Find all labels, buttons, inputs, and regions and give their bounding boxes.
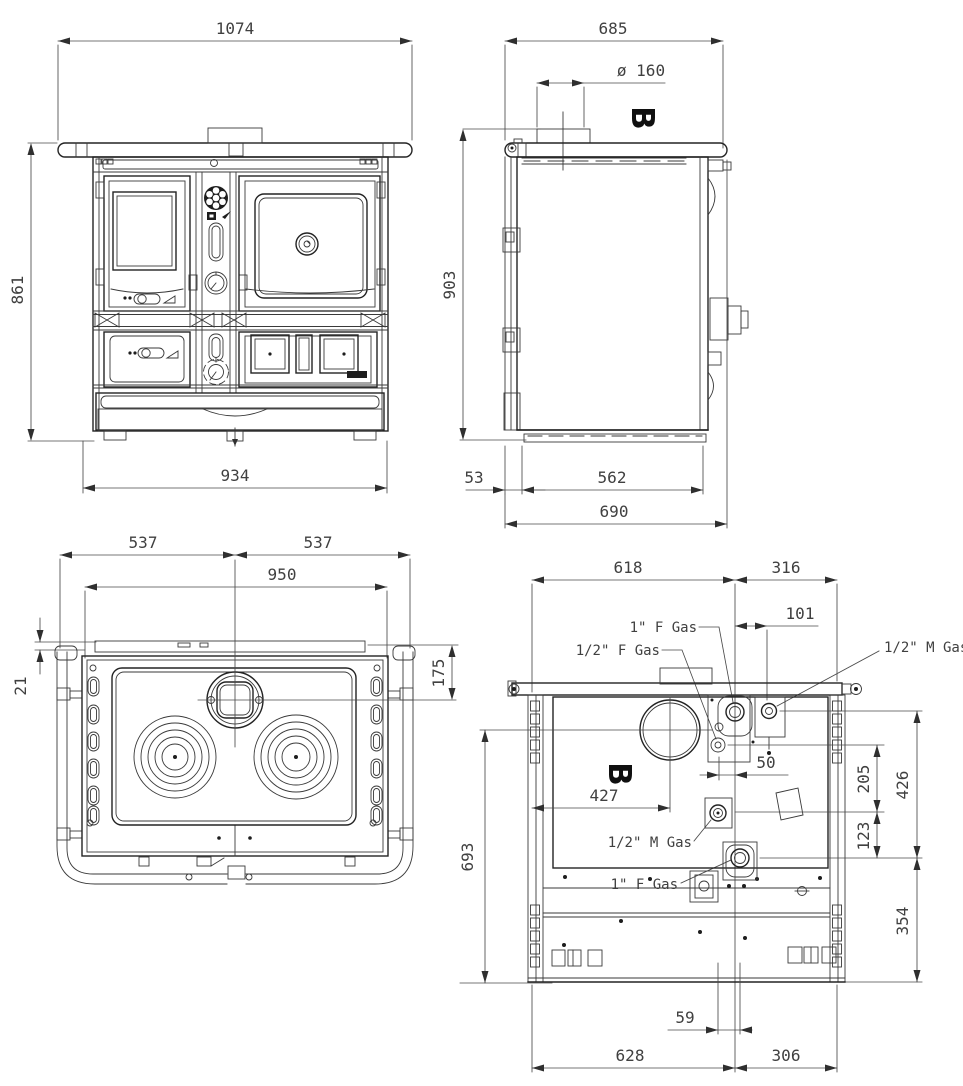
cooktop-plate [112, 668, 356, 825]
dim-text-1074: 1074 [216, 19, 255, 38]
gas-fitting-12f [711, 738, 725, 752]
dim-text-693: 693 [458, 843, 477, 872]
side-dim-overall-height: 903 [440, 129, 541, 440]
dim-text-flue-diameter: ø 160 [617, 61, 665, 80]
dim-text-628: 628 [616, 1046, 645, 1065]
dim-text-316: 316 [772, 558, 801, 577]
oven-knob-icon [296, 233, 318, 255]
dim-text-950: 950 [268, 565, 297, 584]
dim-text-537-left: 537 [129, 533, 158, 552]
dim-text-306: 306 [772, 1046, 801, 1065]
gas-fitting-12m-mid [705, 798, 732, 828]
gas-fitting-1f-bottom [723, 842, 757, 888]
gas-fitting-12m-top [762, 704, 777, 719]
lower-controls [204, 334, 229, 385]
hinge-icon [377, 269, 385, 285]
gas-label-12f-top: 1/2" F Gas [576, 643, 660, 659]
gas-label-1f-bottom: 1" F Gas [611, 877, 678, 893]
hinge-icon [239, 275, 247, 290]
side-worktop-rail [505, 139, 727, 164]
dim-text-59: 59 [675, 1008, 694, 1027]
dim-text-175: 175 [429, 659, 448, 688]
dim-text-562: 562 [598, 468, 627, 487]
rail-end-cap [393, 646, 415, 660]
rear-worktop-rail [508, 668, 862, 696]
dim-text-426: 426 [893, 771, 912, 800]
dim-text-690: 690 [600, 502, 629, 521]
side-rear-fittings [708, 160, 748, 400]
rail-end-cap [55, 646, 77, 660]
rear-dim-59: 59 [668, 963, 752, 1034]
dim-text-21: 21 [11, 676, 30, 695]
rear-dim-354: 354 [846, 858, 922, 982]
dim-text-934: 934 [221, 466, 250, 485]
dim-text-903: 903 [440, 271, 459, 300]
center-bracket [690, 871, 718, 902]
top-dim-worktop-width: 950 [85, 565, 387, 658]
dim-text-861: 861 [8, 276, 27, 305]
top-dim-back-offset: 21 [11, 618, 96, 696]
top-view: 537 537 950 21 [11, 533, 458, 884]
nameplate [347, 371, 367, 378]
gas-label-12m-right: 1/2" M Gas [884, 640, 963, 656]
stove-dimension-drawing: 1074 861 [0, 0, 963, 1086]
dim-text-123: 123 [854, 822, 873, 851]
gas-label-1f-top: 1" F Gas [630, 620, 697, 636]
burner-left [134, 716, 216, 798]
rear-dim-101: 101 [735, 604, 818, 700]
side-base [517, 430, 708, 442]
dim-text-685: 685 [599, 19, 628, 38]
front-dim-overall-height: 861 [8, 143, 94, 441]
gas-label-12m-mid: 1/2" M Gas [608, 835, 692, 851]
rear-flue-stub [660, 668, 712, 684]
front-view: 1074 861 [8, 19, 412, 493]
dim-text-205: 205 [854, 765, 873, 794]
dim-text-354: 354 [893, 907, 912, 936]
chimney-stub [208, 128, 262, 156]
side-body [503, 157, 708, 430]
front-dim-overall-width: 1074 [58, 19, 412, 140]
technical-drawing-sheet: 1074 861 [0, 0, 963, 1086]
grill-knob-icon [204, 358, 229, 385]
worktop [58, 143, 412, 157]
air-vent-wheel-icon [204, 186, 228, 210]
side-dim-base-depth: 562 [534, 446, 703, 494]
oven-door [239, 176, 385, 311]
top-back-rail [95, 641, 365, 652]
ash-door [104, 332, 190, 387]
side-dim-base-offset: 53 [464, 446, 545, 494]
rear-dim-50: 50 [700, 753, 788, 780]
firebox-door [96, 176, 190, 311]
hinge-icon [377, 182, 385, 198]
dim-text-537-right: 537 [304, 533, 333, 552]
hinge-icon [96, 182, 104, 198]
vent-indicator [207, 211, 231, 220]
rear-dim-bottom-widths: 628 306 [532, 985, 837, 1072]
view-label-b-rear: B [601, 762, 637, 786]
dim-text-618: 618 [614, 558, 643, 577]
top-bottom-details [139, 857, 355, 880]
thermometer-gauge [205, 272, 227, 294]
thermometer-slot [209, 223, 223, 261]
middle-band [93, 311, 388, 330]
wood-drawer [93, 385, 388, 430]
gas-fittings-top [708, 695, 785, 762]
dim-text-101: 101 [786, 604, 815, 623]
front-dim-body-width: 934 [83, 441, 387, 493]
burner-right [254, 715, 338, 799]
view-label-b: B [624, 106, 660, 130]
dim-text-50: 50 [756, 753, 775, 772]
rear-dim-693: 693 [458, 730, 552, 983]
rear-dim-205: 205 [728, 745, 884, 812]
flue-collar [198, 560, 456, 747]
rear-view: 618 316 101 1" F Gas 1/2" F Gas 1/2" M G… [458, 558, 963, 1072]
top-latch-knob [211, 160, 218, 167]
dim-text-427: 427 [590, 786, 619, 805]
dim-text-53: 53 [464, 468, 483, 487]
hinge-icon [96, 269, 104, 285]
firebox-window [113, 192, 176, 270]
lower-right-panel [239, 332, 377, 387]
data-plate [776, 788, 803, 820]
side-view: 685 ø 160 B [440, 19, 748, 528]
rear-dim-426: 426 [780, 711, 922, 858]
panel-window [320, 335, 358, 373]
